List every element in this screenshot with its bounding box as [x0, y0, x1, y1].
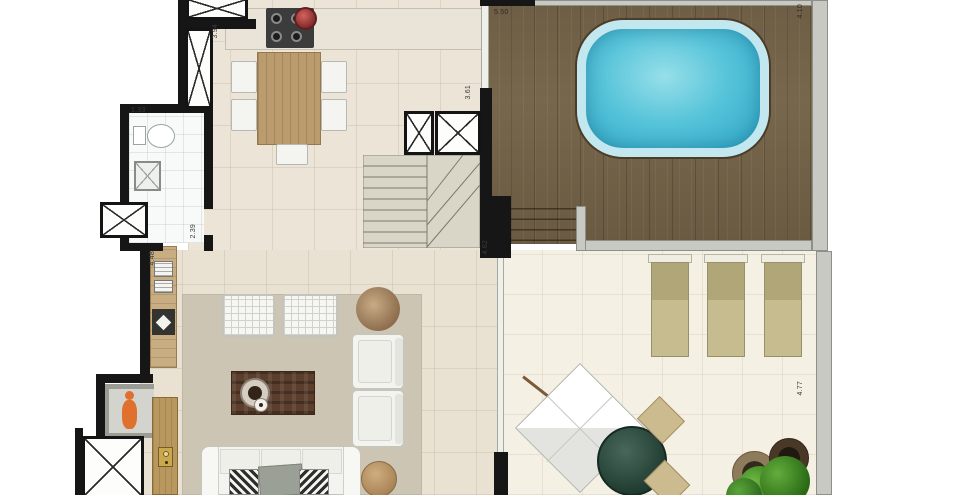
- service-shaft: [186, 0, 248, 20]
- service-shaft: [435, 111, 481, 155]
- ottoman-1: [222, 294, 275, 337]
- elevator-passenger-body: [122, 400, 137, 429]
- armchair-back: [395, 338, 403, 386]
- dimension-label: 5.50: [494, 9, 508, 17]
- deck-top-wall: [530, 0, 812, 6]
- elevator-shaft: [82, 436, 144, 495]
- diamond-art-inlay: [156, 315, 172, 331]
- dining-table: [257, 52, 321, 145]
- shower-box: [134, 161, 161, 191]
- sun-lounger-3: [764, 254, 802, 357]
- sofa-armrest-left: [202, 447, 219, 495]
- cup: [254, 398, 268, 412]
- armchair-cushion: [358, 396, 392, 441]
- dimension-label: 4.10: [797, 4, 805, 18]
- floor-plan: 3.94 1.33 2.39 4.48 3.61 4.62 5.50 4.10 …: [0, 0, 958, 495]
- kitchen-window: [481, 6, 489, 89]
- armchair-back: [395, 394, 403, 444]
- burner: [271, 13, 282, 24]
- dining-chair: [321, 61, 347, 93]
- burner: [291, 31, 302, 42]
- elevator-car: [104, 384, 154, 438]
- burner: [271, 31, 282, 42]
- dining-chair: [231, 61, 257, 93]
- armchair-cushion: [358, 340, 392, 383]
- diamond-art: [152, 309, 175, 335]
- dimension-label: 4.48: [149, 251, 157, 265]
- sofa: [201, 446, 359, 495]
- kitchen-counter: [225, 8, 482, 50]
- cup-center: [259, 403, 263, 407]
- sun-lounger-2: [707, 254, 745, 357]
- entry-door-panel: [152, 397, 178, 495]
- divider-wall-bottom: [494, 452, 508, 495]
- dimension-label: 3.61: [465, 85, 473, 99]
- dining-chair: [321, 99, 347, 131]
- chevron-pillow-2: [299, 469, 329, 495]
- coffee-table: [231, 371, 315, 415]
- service-shaft: [100, 202, 148, 238]
- deck-right-wall: [812, 0, 828, 251]
- dining-chair: [231, 99, 257, 131]
- dimension-label: 4.77: [797, 381, 805, 395]
- elevator-passenger-head: [125, 391, 134, 400]
- keyhole: [165, 461, 168, 464]
- deck-low-wall-return: [576, 206, 586, 251]
- service-shaft: [185, 28, 213, 109]
- sofa-throw: [258, 464, 304, 495]
- armchair-2: [352, 390, 404, 447]
- dimension-label: 3.94: [212, 24, 220, 38]
- bathroom-wall-right: [204, 104, 213, 209]
- door-knob: [163, 451, 169, 457]
- dimension-label: 2.39: [190, 224, 198, 238]
- door-handle-plate: [158, 447, 173, 467]
- stair-wall-right: [480, 88, 492, 200]
- chevron-pillow-1: [229, 469, 259, 495]
- service-shaft: [404, 111, 434, 155]
- deck-corner-wall: [480, 0, 535, 6]
- dimension-label: 4.62: [482, 240, 490, 254]
- lounger-bed: [707, 262, 745, 357]
- staircase: [363, 155, 480, 248]
- dry-plant: [356, 287, 400, 331]
- side-table: [361, 461, 397, 495]
- ottoman-2: [282, 294, 338, 337]
- picture-frame: [154, 280, 173, 293]
- sun-lounger-1: [651, 254, 689, 357]
- elevator-wall-left: [96, 374, 105, 437]
- sliding-glass-door: [497, 250, 504, 454]
- dimension-label: 1.33: [131, 107, 145, 115]
- armchair-1: [352, 334, 404, 389]
- bathroom-door-jamb: [204, 235, 213, 251]
- toilet-bowl: [147, 124, 175, 148]
- toilet-tank: [133, 126, 146, 145]
- sofa-armrest-right: [343, 447, 360, 495]
- terrace-right-wall: [816, 251, 832, 495]
- swimming-pool: [577, 20, 769, 157]
- cooking-pot: [294, 7, 317, 30]
- lounger-bed: [764, 262, 802, 357]
- dining-chair: [276, 144, 308, 165]
- lounger-bed: [651, 262, 689, 357]
- deck-low-wall: [584, 240, 812, 251]
